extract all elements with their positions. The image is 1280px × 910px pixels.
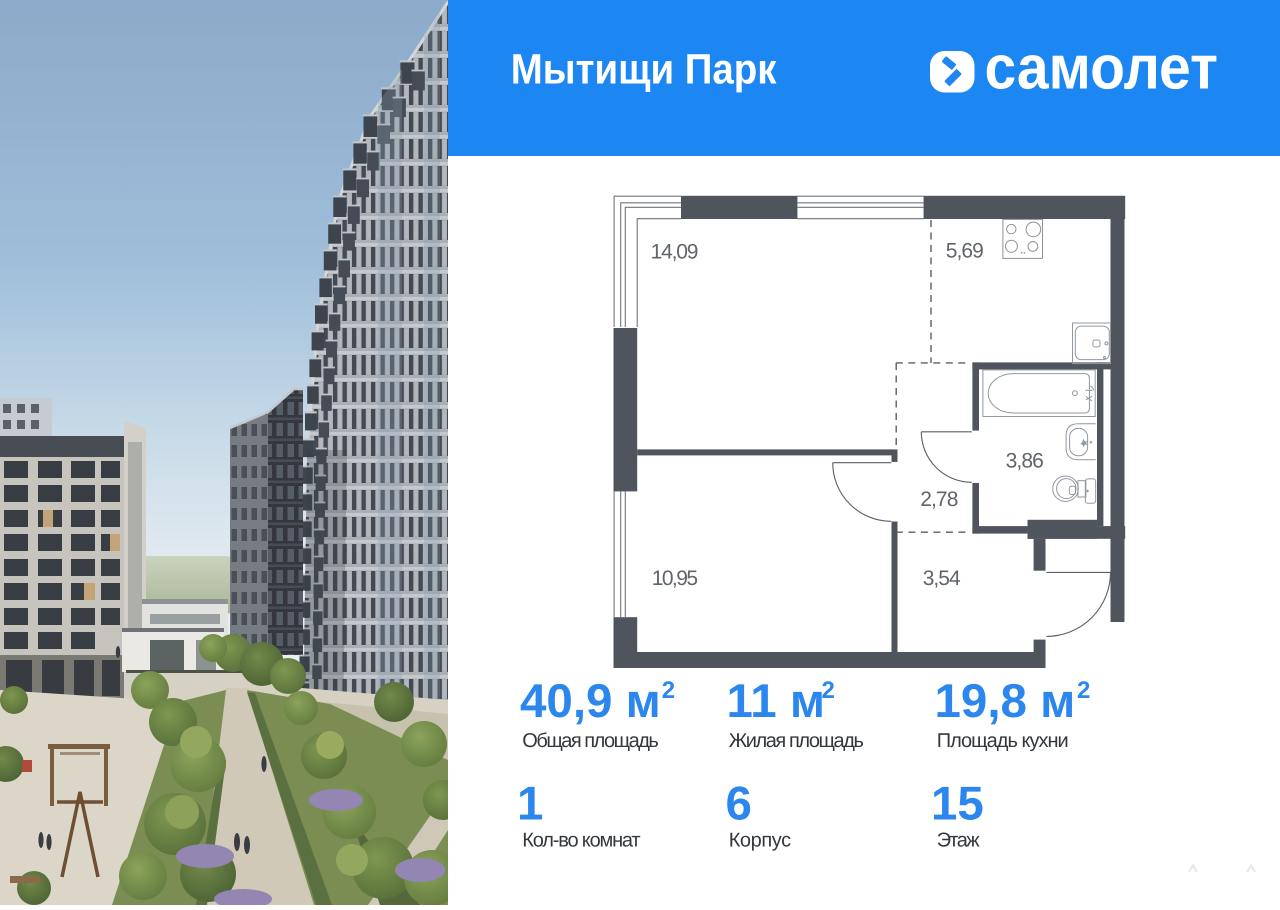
svg-text:2,78: 2,78	[920, 488, 958, 511]
svg-text:2: 2	[822, 677, 835, 704]
svg-text:самолет: самолет	[985, 33, 1219, 102]
svg-text:19,8 м: 19,8 м	[935, 675, 1076, 728]
svg-text:11 м: 11 м	[727, 675, 826, 728]
svg-text:2: 2	[1077, 677, 1090, 704]
svg-text:Этаж: Этаж	[937, 830, 981, 852]
svg-text:10,95: 10,95	[652, 567, 698, 590]
svg-text:2: 2	[662, 677, 675, 704]
svg-text:Кол-во комнат: Кол-во комнат	[522, 830, 640, 852]
svg-text:3,86: 3,86	[1006, 450, 1044, 473]
svg-text:1: 1	[517, 777, 543, 830]
svg-text:40,9 м: 40,9 м	[520, 675, 661, 728]
svg-text:14,09: 14,09	[651, 240, 699, 263]
svg-text:Корпус: Корпус	[729, 830, 791, 852]
svg-text:Общая площадь: Общая площадь	[522, 730, 659, 752]
svg-text:Площадь кухни: Площадь кухни	[937, 730, 1069, 752]
svg-text:15: 15	[931, 777, 984, 830]
svg-text:3,54: 3,54	[923, 567, 961, 590]
svg-text:5,69: 5,69	[946, 239, 984, 262]
svg-text:6: 6	[726, 777, 752, 830]
svg-text:Жилая площадь: Жилая площадь	[729, 730, 864, 752]
svg-text:Мытищи Парк: Мытищи Парк	[511, 45, 777, 93]
